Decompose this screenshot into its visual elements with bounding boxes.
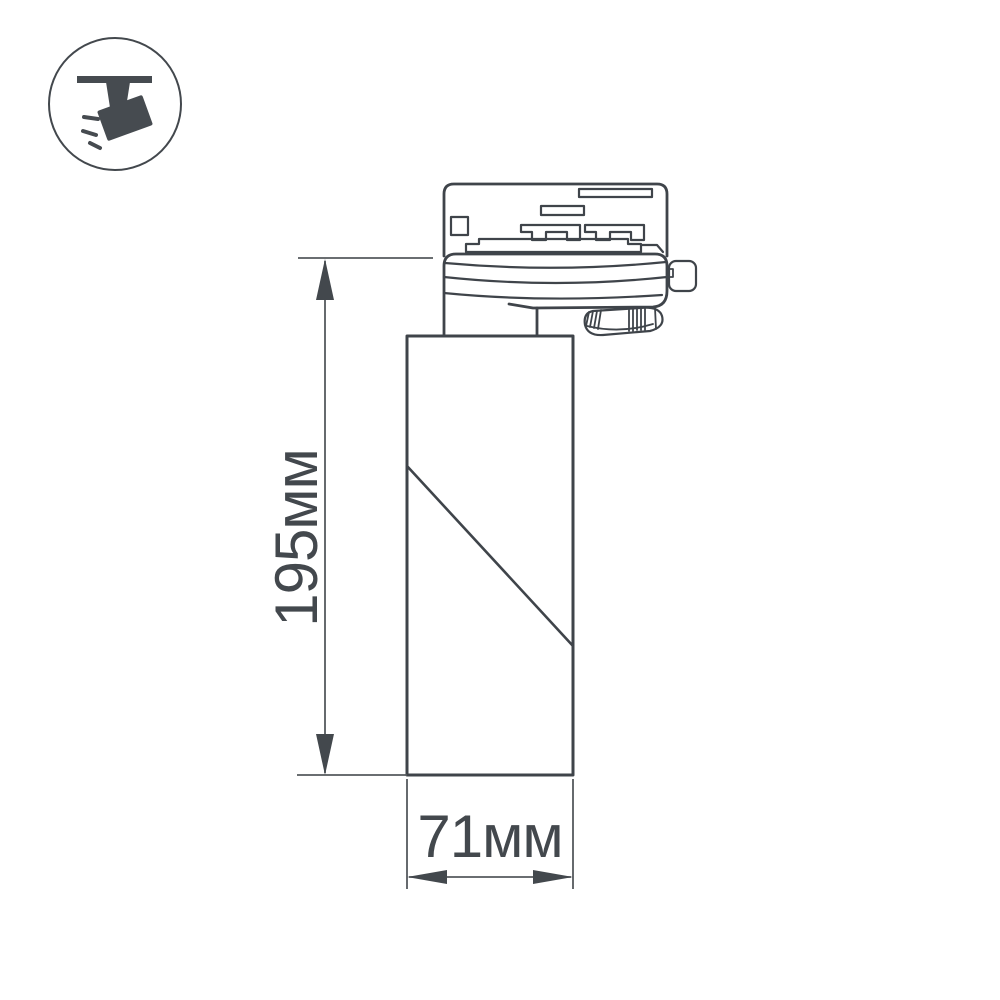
icon-track-bar	[77, 76, 152, 83]
arrow-up-icon	[316, 259, 334, 300]
adapter-lock-latch	[667, 261, 696, 291]
adjustment-knob	[585, 308, 663, 335]
technical-drawing-svg: 195мм 71мм	[0, 0, 1000, 1000]
product-dimension-drawing: 195мм 71мм	[0, 0, 1000, 1000]
adapter-base-band-lines	[444, 262, 667, 299]
fixture-body	[407, 336, 573, 775]
height-dimension-label: 195мм	[263, 449, 330, 627]
arrow-right-icon	[533, 870, 573, 884]
width-dimension-label: 71мм	[417, 803, 562, 870]
adapter-contact-tabs	[521, 225, 644, 240]
corner-badge	[49, 38, 181, 170]
arrow-down-icon	[316, 734, 334, 775]
arrow-left-icon	[407, 870, 447, 884]
adapter-square-port	[451, 217, 468, 235]
adapter-slot-long	[579, 189, 652, 197]
adapter-connector-box	[444, 184, 667, 256]
adapter-slot-short	[541, 206, 584, 215]
adapter-mounting-bar-step	[641, 245, 663, 252]
width-dimension: 71мм	[407, 779, 573, 889]
knob-face-curve	[587, 324, 653, 330]
track-adapter	[444, 184, 696, 336]
adapter-mounting-bar	[466, 239, 641, 252]
